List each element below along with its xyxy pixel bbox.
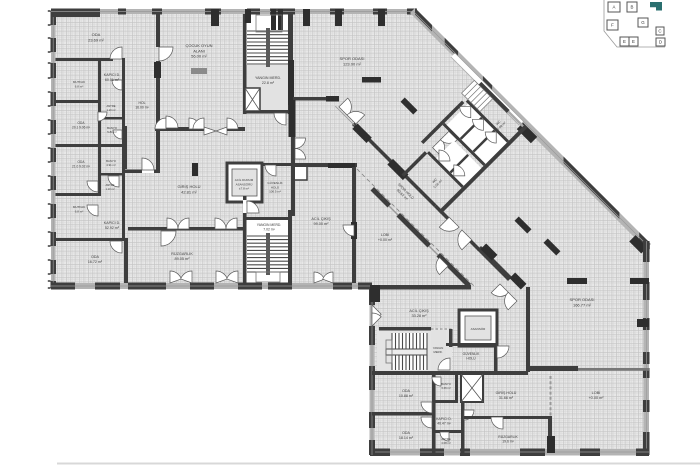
svg-text:3.46 m²: 3.46 m² xyxy=(441,386,451,390)
svg-text:RÜZGARLIK: RÜZGARLIK xyxy=(498,435,518,439)
svg-text:KAPICI D.: KAPICI D. xyxy=(104,221,120,225)
svg-text:B: B xyxy=(631,5,634,10)
svg-text:ANTRE: ANTRE xyxy=(105,183,114,187)
svg-text:42.81 m²: 42.81 m² xyxy=(181,189,197,194)
svg-text:99.00 m²: 99.00 m² xyxy=(314,222,330,226)
svg-text:16.72 m²: 16.72 m² xyxy=(88,260,103,264)
svg-text:6.8 m²: 6.8 m² xyxy=(75,209,84,213)
svg-text:SPOR ODASI: SPOR ODASI xyxy=(570,297,595,302)
svg-text:60.01 m²: 60.01 m² xyxy=(105,78,120,82)
svg-text:G: G xyxy=(641,20,645,25)
svg-text:ACİL DURUM: ACİL DURUM xyxy=(235,177,254,182)
svg-text:4.91 m²: 4.91 m² xyxy=(106,163,116,167)
svg-text:21.0 9.02 m²: 21.0 9.02 m² xyxy=(72,165,90,169)
svg-text:±7.8 m²: ±7.8 m² xyxy=(239,187,249,191)
svg-text:56.00 m²: 56.00 m² xyxy=(191,54,207,59)
svg-text:E: E xyxy=(632,39,635,44)
svg-text:33.28 m²: 33.28 m² xyxy=(412,314,428,318)
svg-text:22.8 m²: 22.8 m² xyxy=(262,81,275,85)
svg-text:5.81 m²: 5.81 m² xyxy=(107,130,117,134)
svg-text:C: C xyxy=(658,29,661,34)
svg-text:10.88 m²: 10.88 m² xyxy=(399,394,414,398)
svg-text:166.77 m²: 166.77 m² xyxy=(573,302,592,307)
svg-text:ÇOCUK OYUN: ÇOCUK OYUN xyxy=(185,43,212,48)
svg-text:ACİL ÇIKIŞ: ACİL ÇIKIŞ xyxy=(311,216,331,221)
svg-text:89.05 m²: 89.05 m² xyxy=(175,257,191,261)
svg-text:ODA: ODA xyxy=(78,160,86,164)
svg-text:ODA: ODA xyxy=(402,431,410,435)
svg-text:16.00 m²: 16.00 m² xyxy=(135,106,149,110)
svg-text:6.8 m²: 6.8 m² xyxy=(75,84,84,88)
svg-text:GÜVENLİK: GÜVENLİK xyxy=(267,180,282,185)
svg-text:7.02 m²: 7.02 m² xyxy=(263,228,275,232)
svg-text:ALANI: ALANI xyxy=(193,48,205,53)
svg-text:19.6 m²: 19.6 m² xyxy=(502,440,514,444)
svg-text:ODA: ODA xyxy=(91,255,99,259)
svg-text:GİRİŞ HOLÜ: GİRİŞ HOLÜ xyxy=(496,390,517,395)
svg-text:+0.00 m²: +0.00 m² xyxy=(588,396,604,400)
svg-text:123.00 m²: 123.00 m² xyxy=(343,61,362,66)
svg-text:LOBİ: LOBİ xyxy=(381,232,389,237)
svg-text:31.66 m²: 31.66 m² xyxy=(499,396,514,400)
svg-text:20.1 9.06 m²: 20.1 9.06 m² xyxy=(72,126,90,130)
svg-text:100.5 m²: 100.5 m² xyxy=(269,190,281,194)
svg-text:YANGIN MERD.: YANGIN MERD. xyxy=(257,223,282,227)
svg-text:LOBİ: LOBİ xyxy=(592,390,601,395)
svg-text:SPOR ODASI: SPOR ODASI xyxy=(340,56,365,61)
svg-text:52.92 m²: 52.92 m² xyxy=(105,226,120,230)
svg-text:HOL: HOL xyxy=(139,101,146,105)
svg-text:ODA: ODA xyxy=(78,121,86,125)
svg-text:4.08 m²: 4.08 m² xyxy=(441,441,451,445)
svg-text:F: F xyxy=(611,23,614,28)
svg-text:GİRİŞ HOLÜ: GİRİŞ HOLÜ xyxy=(177,184,200,189)
svg-text:ODA: ODA xyxy=(402,389,410,393)
svg-text:E: E xyxy=(623,39,626,44)
svg-text:MERD.: MERD. xyxy=(433,350,442,354)
svg-text:18.14 m²: 18.14 m² xyxy=(399,436,414,440)
svg-text:1.10 m²: 1.10 m² xyxy=(105,187,114,191)
svg-text:RÜZGARLIK: RÜZGARLIK xyxy=(171,252,193,256)
svg-text:HOLÜ: HOLÜ xyxy=(466,357,476,361)
svg-text:+0.00 m²: +0.00 m² xyxy=(378,238,393,242)
svg-text:ASANSÖR: ASANSÖR xyxy=(471,327,487,331)
svg-text:40.47 m²: 40.47 m² xyxy=(437,422,451,426)
svg-text:KAPICI D.: KAPICI D. xyxy=(104,73,120,77)
svg-text:ACİL ÇIKIŞ: ACİL ÇIKIŞ xyxy=(409,308,429,313)
svg-text:23.69 m²: 23.69 m² xyxy=(88,37,104,42)
svg-text:D: D xyxy=(659,40,662,45)
svg-text:ANTRE: ANTRE xyxy=(106,104,115,108)
svg-text:KAPICI D.: KAPICI D. xyxy=(436,417,452,421)
svg-text:A: A xyxy=(613,5,616,10)
svg-text:GÜVENLİK: GÜVENLİK xyxy=(463,351,480,356)
svg-text:YANGIN MERD.: YANGIN MERD. xyxy=(255,76,281,80)
svg-text:1.10 m²: 1.10 m² xyxy=(106,108,115,112)
svg-text:ODA: ODA xyxy=(92,32,101,37)
